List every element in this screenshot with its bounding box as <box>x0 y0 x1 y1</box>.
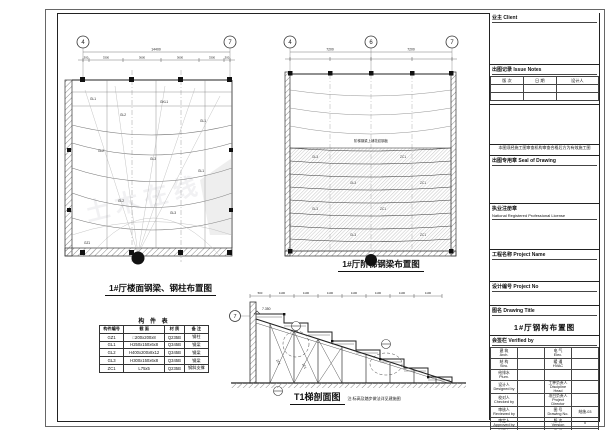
member-table-title: 构 件 表 <box>99 316 209 325</box>
title-block: 业主 Client 出图记录 Issue Notes 版 次 日 期 设计人 本… <box>489 13 599 420</box>
issue-notes-label: 出图记录 Issue Notes <box>492 66 597 75</box>
cell: Q345B <box>165 341 185 349</box>
grid-bubble-label: 4 <box>81 40 85 46</box>
plan-view-floor-beams: 4 7 14400 300 3300 3600 3600 3300 300 <box>60 30 240 280</box>
stage-center-marker <box>132 252 145 265</box>
drawing-title: 1#厅钢构布置图 <box>492 322 597 333</box>
role-label: 电 气 Elec. <box>545 348 572 359</box>
cell: H300x150x6x8 <box>124 357 165 365</box>
brace-label: ZC1 <box>301 363 308 370</box>
seal-label: 出图专用章 Seal of Drawing <box>492 157 597 166</box>
review-note: 本图须经施工图审查机构审查合格后方为有效施工图 <box>490 145 599 156</box>
cell: Q235B <box>165 333 185 341</box>
beam-label: GL3 <box>170 211 176 215</box>
brace-label: ZC1 <box>420 233 426 237</box>
table-row: ZC1 L75x5 Q235B 钢斜支撑 <box>100 364 209 372</box>
role-label: 工种负责人 Discipline Head <box>545 381 572 394</box>
dim: 7200 <box>326 48 334 52</box>
beam-label: GKL1 <box>160 100 168 104</box>
beam-label: GL1 <box>90 97 96 101</box>
cell <box>518 359 545 370</box>
cell: Q345B <box>165 357 185 365</box>
grid-bubble-label: 6 <box>369 40 373 46</box>
verified-by-label: 会签栏 Verified by <box>492 337 597 346</box>
column-label: GZ1 <box>84 241 90 245</box>
cell <box>518 417 545 428</box>
cell: 钢梁 <box>184 349 208 357</box>
beam-label: GL3 <box>350 233 356 237</box>
elevation-label: 7.350 <box>262 307 271 311</box>
project-no-label: 设计编号 Project No <box>492 283 597 292</box>
grid-bubble-label: 7 <box>228 40 232 46</box>
role-label: 校对人 Checked by <box>491 393 518 406</box>
role-label: 设计人 Designed by <box>491 381 518 394</box>
role-label: 审核人 Reviewed by <box>491 406 518 417</box>
role-label: 审定人 Approved by <box>491 417 518 428</box>
cell <box>572 370 599 381</box>
cell: Q345B <box>165 349 185 357</box>
role-label: 项目负责人 Project Director <box>545 393 572 406</box>
dim-seg: 1100 <box>375 291 382 295</box>
role-label <box>545 370 572 381</box>
verify-table: 建 筑 Arch. 电 气 Elec. 结 构 Stru. 暖 通 HVAC 给… <box>490 347 599 430</box>
table-row: GL2 H400x200x8x12 Q345B 钢梁 <box>100 349 209 357</box>
dim-seg: 1100 <box>399 291 406 295</box>
dim-seg: 3300 <box>209 56 216 60</box>
plan-view-stepped-beams: 4 6 7 7200 7200 阶梯钢梁上铺 <box>280 30 465 275</box>
brace-label: ZC1 <box>420 181 426 185</box>
table-row: GL3 H300x150x6x8 Q345B 钢梁 <box>100 357 209 365</box>
role-label: 日 期 Date <box>545 428 572 430</box>
cell: GL2 <box>100 349 124 357</box>
beam-label: GL1 <box>200 119 206 123</box>
issue-col: 版 次 <box>491 77 524 85</box>
section-view-stair: 500 1100 1100 1100 1100 1100 1100 1100 7… <box>226 286 471 398</box>
cell <box>518 370 545 381</box>
member-col-header: 截 面 <box>124 326 165 334</box>
cell: H250x150x6x8 <box>124 341 165 349</box>
table-row: GZ1 □200x200x8 Q235B 钢柱 <box>100 333 209 341</box>
dim-seg: 300 <box>225 56 230 60</box>
version-value: 0 <box>572 417 599 428</box>
drawing-title-label: 图名 Drawing Title <box>492 307 597 316</box>
dim-seg: 1100 <box>279 291 286 295</box>
section-note: 注:标高及踏步做法详见建施图 <box>348 396 401 401</box>
cell <box>518 428 545 430</box>
plan2-caption: 1#厅阶梯钢梁布置图 <box>316 258 446 272</box>
beam-label: GL1 <box>198 169 204 173</box>
beam-label: GL3 <box>350 181 356 185</box>
cell: □200x200x8 <box>124 333 165 341</box>
issue-col: 设计人 <box>556 77 598 85</box>
cell <box>491 93 524 101</box>
cell <box>518 393 545 406</box>
beam-label: GL2 <box>98 149 104 153</box>
member-col-header: 构件编号 <box>100 326 124 334</box>
drawing-sheet: 土木在线 4 7 14400 300 3300 3600 3600 3300 3… <box>0 0 610 432</box>
cell <box>556 93 598 101</box>
cell: Q235B <box>165 364 185 372</box>
cell: GZ1 <box>100 333 124 341</box>
cell <box>572 381 599 394</box>
dim-seg: 1100 <box>327 291 334 295</box>
role-label: 建 筑 Arch. <box>491 348 518 359</box>
dim-seg: 300 <box>84 56 89 60</box>
cell <box>572 428 599 430</box>
brace-label: ZC1 <box>380 207 386 211</box>
cell: H400x200x8x12 <box>124 349 165 357</box>
cell <box>518 406 545 417</box>
dim-seg: 1100 <box>425 291 432 295</box>
license-label-en: National Registered Professional License <box>492 213 597 220</box>
issue-col: 日 期 <box>523 77 556 85</box>
cell: 钢柱 <box>184 333 208 341</box>
cell: L75x5 <box>124 364 165 372</box>
cell <box>572 348 599 359</box>
beam-label: GL3 <box>312 155 318 159</box>
beam-label: GL3 <box>312 207 318 211</box>
member-col-header: 材 质 <box>165 326 185 334</box>
dim-seg: 3300 <box>103 56 110 60</box>
cell: 钢斜支撑 <box>184 364 208 372</box>
role-label: 结 构 Stru. <box>491 359 518 370</box>
cell: ZC1 <box>100 364 124 372</box>
license-label-cn: 执业注册章 <box>492 205 597 213</box>
cell: 钢梁 <box>184 341 208 349</box>
role-label: 暖 通 HVAC <box>545 359 572 370</box>
dim-seg: 500 <box>258 291 263 295</box>
cell: GL1 <box>100 341 124 349</box>
grid-bubble-label: 4 <box>288 40 292 46</box>
dim-seg: 3600 <box>139 56 146 60</box>
table-row: GL1 H250x150x6x8 Q345B 钢梁 <box>100 341 209 349</box>
cell <box>572 393 599 406</box>
section-caption: T1梯剖面图注:标高及踏步做法详见建施图 <box>290 390 470 405</box>
brace-label: ZC1 <box>400 155 406 159</box>
role-label: 图 号 Drawing No. <box>545 406 572 417</box>
cell: 钢梁 <box>184 357 208 365</box>
cell: GL3 <box>100 357 124 365</box>
role-label: 给排水 Plum. <box>491 370 518 381</box>
dim-total: 14400 <box>151 48 161 52</box>
beam-label: GL2 <box>118 199 124 203</box>
plan2-note: 阶梯钢梁上铺花纹钢板 <box>354 138 389 143</box>
member-table: 构 件 表 构件编号 截 面 材 质 备 注 GZ1 □200x200x8 Q2… <box>99 316 209 373</box>
cell <box>518 381 545 394</box>
cell <box>523 85 556 93</box>
cell <box>518 348 545 359</box>
plan1-caption: 1#厅楼面钢梁、钢柱布置图 <box>88 282 233 296</box>
role-label: 版 次 Version <box>545 417 572 428</box>
grid-bubble-label: 7 <box>233 314 236 320</box>
grid-bubble-label: 7 <box>450 40 454 46</box>
drawing-no-value: 结施-03 <box>572 406 599 417</box>
beam-label: GL2 <box>120 113 126 117</box>
project-name-label: 工程名称 Project Name <box>492 251 597 260</box>
member-col-header: 备 注 <box>184 326 208 334</box>
dim: 7200 <box>407 48 415 52</box>
client-label: 业主 Client <box>492 14 597 23</box>
dim-seg: 1100 <box>351 291 358 295</box>
beam-label: GL3 <box>150 157 156 161</box>
dim-seg: 3600 <box>177 56 184 60</box>
role-label: 制图人 Drawn by <box>491 428 518 430</box>
dim-seg: 1100 <box>303 291 310 295</box>
cell <box>572 359 599 370</box>
cell <box>523 93 556 101</box>
cell <box>491 85 524 93</box>
issue-notes-table: 版 次 日 期 设计人 <box>490 76 599 101</box>
cell <box>556 85 598 93</box>
